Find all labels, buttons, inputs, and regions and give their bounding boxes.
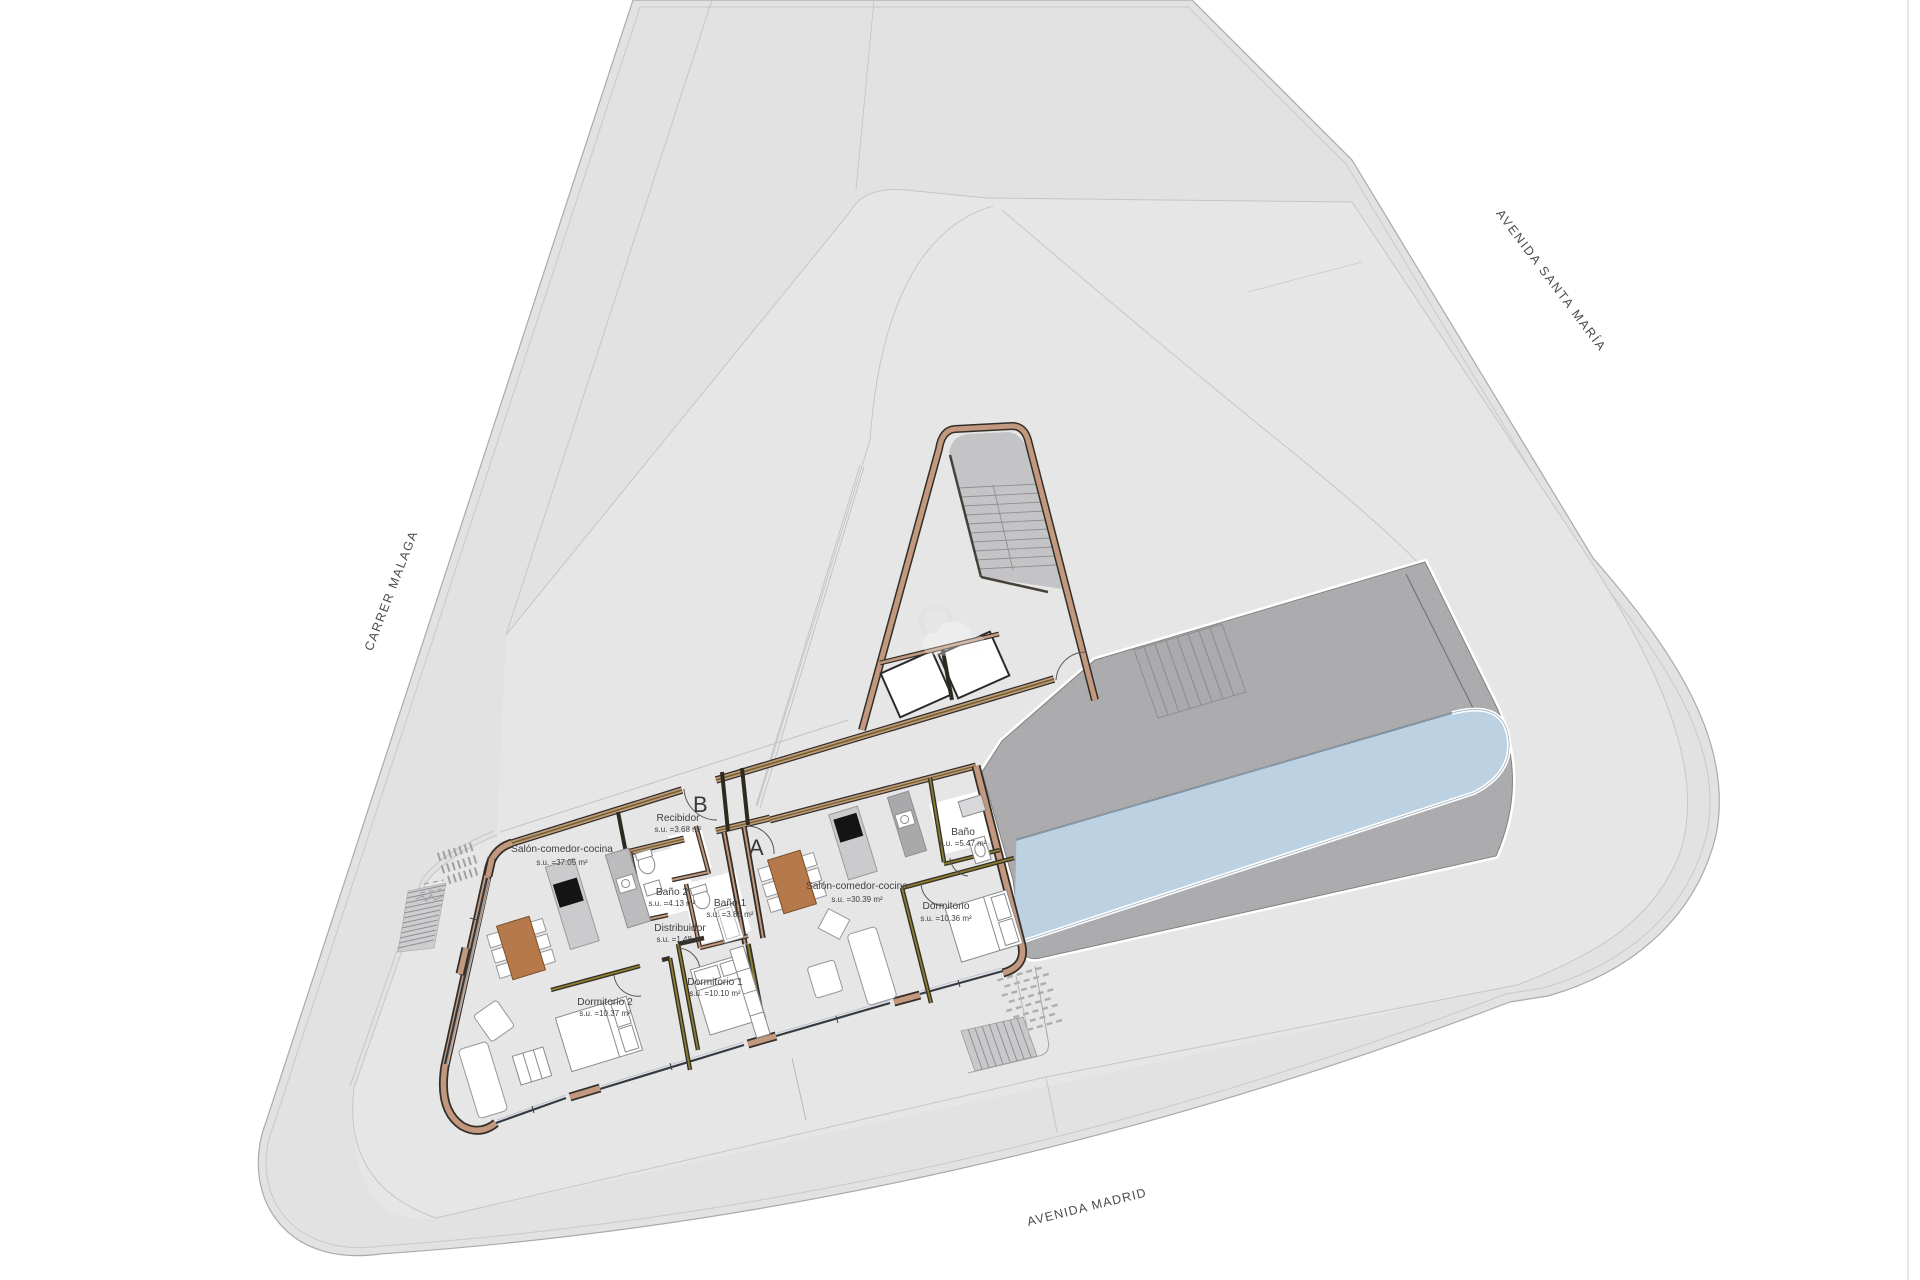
svg-text:Baño 2: Baño 2 xyxy=(656,887,689,898)
svg-text:s.u. =3.68 m²: s.u. =3.68 m² xyxy=(655,825,702,834)
svg-text:Baño 1: Baño 1 xyxy=(714,898,747,909)
svg-text:AVENIDA SANTA MARÍA: AVENIDA SANTA MARÍA xyxy=(1493,206,1610,354)
svg-text:Baño: Baño xyxy=(951,827,975,838)
svg-text:B: B xyxy=(693,792,708,817)
svg-text:Dormitorio: Dormitorio xyxy=(923,901,970,912)
svg-text:s.u. =37.05 m²: s.u. =37.05 m² xyxy=(536,858,588,867)
svg-text:CARRER MALAGA: CARRER MALAGA xyxy=(362,528,421,652)
svg-text:Dormitorio 1: Dormitorio 1 xyxy=(687,977,743,988)
svg-text:A: A xyxy=(749,835,764,860)
svg-text:s.u. =30.39 m²: s.u. =30.39 m² xyxy=(831,895,883,904)
svg-text:Dormitorio 2: Dormitorio 2 xyxy=(577,997,633,1008)
svg-text:Salón-comedor-cocina: Salón-comedor-cocina xyxy=(511,844,613,855)
svg-text:Distribuidor: Distribuidor xyxy=(654,923,706,934)
svg-text:Salón-comedor-cocina: Salón-comedor-cocina xyxy=(806,881,908,892)
svg-text:s.u. =5.47 m²: s.u. =5.47 m² xyxy=(940,839,987,848)
svg-text:s.u. =10.36 m²: s.u. =10.36 m² xyxy=(920,914,972,923)
svg-text:s.u. =4.13 m²: s.u. =4.13 m² xyxy=(649,899,696,908)
svg-text:s.u. =3.86 m²: s.u. =3.86 m² xyxy=(707,910,754,919)
svg-text:s.u. =10.10 m²: s.u. =10.10 m² xyxy=(689,989,741,998)
svg-text:s.u. =10.37 m²: s.u. =10.37 m² xyxy=(579,1009,631,1018)
svg-text:AVENIDA MADRID: AVENIDA MADRID xyxy=(1026,1185,1149,1228)
svg-text:s.u. =1.48 m²: s.u. =1.48 m² xyxy=(657,935,704,944)
